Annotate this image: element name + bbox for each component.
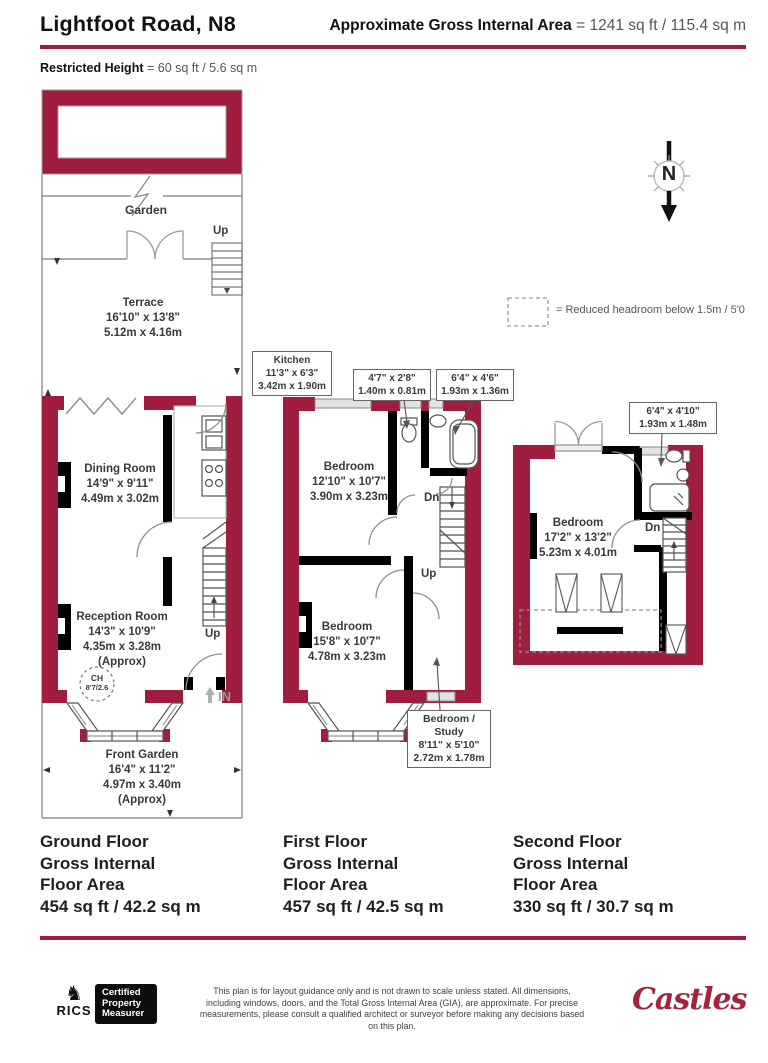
basin-icon [430, 415, 446, 427]
stove-icon [202, 460, 226, 496]
entrance-arrow-icon [205, 687, 215, 703]
legend-swatch [508, 298, 548, 326]
second-dn-label: Dn [645, 522, 660, 534]
footer-rule [40, 936, 746, 940]
first-fixtures [401, 415, 478, 468]
chimney-notch-2 [299, 616, 306, 632]
second-stairs [663, 518, 686, 572]
basin-icon-2 [677, 469, 689, 481]
second-bedroom-label: Bedroom 17'2" x 13'2" 5.23m x 4.01m [539, 516, 617, 561]
compass-north-label: N [662, 163, 676, 186]
first-bedroom-front-label: Bedroom 12'10" x 10'7" 3.90m x 3.23m [310, 460, 388, 505]
bathroom-callout: 6'4" x 4'6" 1.93m x 1.36m [436, 369, 514, 401]
wc-callout: 4'7" x 2'8" 1.40m x 0.81m [353, 369, 431, 401]
ceiling-height-label: CH 8'7/2.6 [86, 674, 109, 692]
certified-property-measurer-badge: Certified Property Measurer [95, 984, 157, 1024]
first-stairs [440, 487, 465, 567]
terrace-double-door [127, 231, 183, 259]
second-top-window [640, 447, 668, 455]
first-bedroom-rear-label: Bedroom 15'8" x 10'7" 4.78m x 3.23m [308, 620, 386, 665]
outbuilding [42, 90, 242, 174]
toilet-icon-2 [666, 450, 682, 462]
entrance-label: IN [218, 689, 231, 704]
reception-room-label: Reception Room 14'3" x 10'9" 4.35m x 3.2… [76, 610, 167, 670]
ground-stairs-up-label: Up [205, 628, 220, 640]
folding-window [66, 398, 136, 414]
castles-logo: Castles [632, 982, 746, 1017]
ground-floor-area-label: Ground Floor Gross Internal Floor Area 4… [40, 831, 201, 917]
floorplan-page: Lightfoot Road, N8 Approximate Gross Int… [0, 0, 768, 1063]
first-floor-plan [283, 397, 481, 742]
terrace-label: Terrace 16'10" x 13'8" 5.12m x 4.16m [104, 296, 182, 341]
rics-lion-icon: ♞ [54, 984, 94, 1004]
french-doors [555, 422, 602, 452]
first-dn-label: Dn [424, 492, 439, 504]
kitchen-callout: Kitchen 11'3" x 6'3" 3.42m x 1.90m [252, 351, 332, 396]
garden-stairs [212, 243, 242, 295]
second-floor-area-label: Second Floor Gross Internal Floor Area 3… [513, 831, 674, 917]
first-floor-area-label: First Floor Gross Internal Floor Area 45… [283, 831, 444, 917]
study-callout: Bedroom / Study 8'11" x 5'10" 2.72m x 1.… [407, 710, 491, 768]
garden-label: Garden [125, 203, 167, 218]
rics-logo: ♞ RICS [54, 984, 94, 1017]
legend-label: = Reduced headroom below 1.5m / 5'0 [556, 304, 745, 316]
ground-floor-plan [42, 90, 242, 818]
dining-room-label: Dining Room 14'9" x 9'11" 4.49m x 3.02m [81, 462, 159, 507]
shower-callout: 6'4" x 4'10" 1.93m x 1.48m [629, 402, 717, 434]
disclaimer-text: This plan is for layout guidance only an… [196, 986, 588, 1032]
front-garden-label: Front Garden 16'4" x 11'2" 4.97m x 3.40m… [103, 748, 181, 808]
first-up-label: Up [421, 568, 436, 580]
second-fixtures [650, 450, 690, 511]
main-stairs [203, 522, 226, 626]
garden-stairs-up-label: Up [213, 225, 228, 237]
